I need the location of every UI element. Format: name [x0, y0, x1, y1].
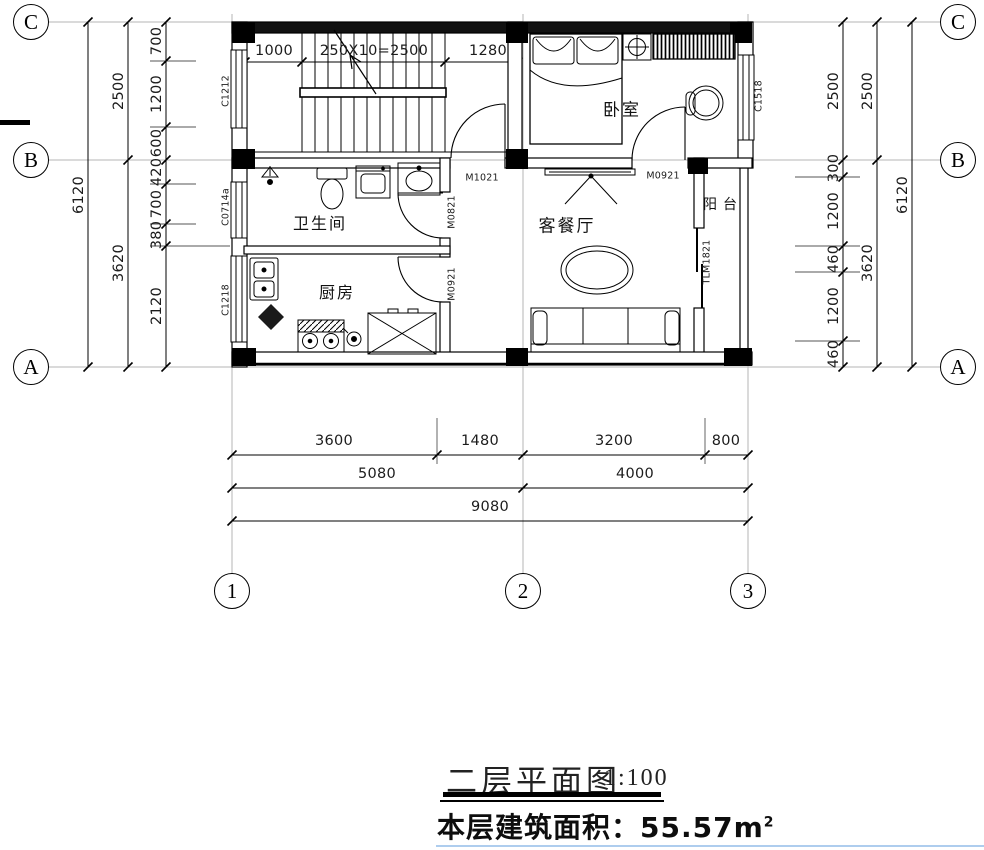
room-label-living-dining: 客餐厅	[539, 212, 596, 237]
dim-left-3620: 3620	[111, 244, 127, 282]
label-door-m0821: M0821	[447, 195, 458, 228]
dim-bottom-800: 800	[712, 433, 741, 449]
bedroom-table-chair	[686, 86, 723, 120]
label-window-c1518: C1518	[754, 80, 765, 112]
dim-bottom-5080: 5080	[358, 466, 396, 482]
washing-machine	[356, 166, 390, 198]
dim-right-300: 300	[826, 154, 842, 183]
grid-bubble-left-C: C	[13, 4, 49, 40]
counter-island	[368, 309, 436, 354]
title-underline-thick	[443, 792, 661, 797]
grid-bubble-left-B: B	[13, 142, 49, 178]
dim-left-600: 600	[149, 129, 165, 158]
dim-top-1000: 1000	[255, 43, 293, 59]
living-furniture	[531, 169, 680, 352]
window-c1518	[738, 55, 754, 140]
dim-left-700b: 700	[149, 190, 165, 219]
walls	[232, 22, 753, 367]
grid-bubble-2: 2	[505, 573, 541, 609]
gas-stove	[298, 320, 344, 352]
dim-left-2120: 2120	[149, 287, 165, 325]
grid-bubble-right-B: B	[940, 142, 976, 178]
grid-bubble-3: 3	[730, 573, 766, 609]
room-label-balcony: 阳台	[703, 194, 743, 214]
grid-bubble-right-C: C	[940, 4, 976, 40]
dim-bottom-1480: 1480	[461, 433, 499, 449]
sofa	[531, 308, 680, 352]
dim-right-3620: 3620	[860, 244, 876, 282]
dim-bottom-3600: 3600	[315, 433, 353, 449]
dim-left-2500: 2500	[111, 72, 127, 110]
label-door-m0921-bedroom: M0921	[646, 171, 679, 182]
shower-symbol	[262, 166, 278, 185]
grid-bubble-1: 1	[214, 573, 250, 609]
window-c1212	[231, 50, 247, 128]
label-door-m0921-kitchen: M0921	[447, 267, 458, 300]
floor-area-value: 55.57m	[640, 811, 764, 844]
cooker-pot	[344, 329, 361, 346]
kitchen-fixtures	[250, 258, 436, 354]
dimension-ticks	[84, 18, 917, 526]
dim-top-treads: 250X10=2500	[320, 43, 428, 59]
dim-left-700a: 700	[149, 27, 165, 56]
floor-area-sup: 2	[764, 815, 775, 831]
door-m1021	[451, 104, 505, 158]
floor-drain	[258, 304, 284, 330]
doors	[398, 104, 702, 308]
toilet	[317, 168, 347, 209]
dim-right-1200b: 1200	[826, 287, 842, 325]
dim-bottom-4000: 4000	[616, 466, 654, 482]
room-label-bedroom: 卧室	[603, 96, 641, 121]
bathroom-fixtures	[262, 163, 440, 209]
label-window-c1212: C1212	[221, 75, 232, 107]
wardrobe	[653, 34, 735, 59]
door-m0921-kitchen	[398, 257, 443, 302]
dim-right-2500i: 2500	[826, 72, 842, 110]
kitchen-sink	[250, 258, 278, 300]
dim-left-420: 420	[149, 158, 165, 187]
floor-area-label: 本层建筑面积：	[437, 811, 640, 844]
dim-bottom-9080: 9080	[471, 499, 509, 515]
plan-geometry	[0, 0, 984, 850]
floor-plan-sheet: C B A C B A 1 2 3 1000 250X10=2500 1280 …	[0, 0, 984, 850]
label-window-c0714a: C0714a	[221, 188, 232, 226]
label-door-tlm1821: TLM1821	[702, 240, 713, 285]
dimension-lines	[88, 22, 912, 521]
bed	[530, 34, 622, 144]
dining-table	[561, 246, 633, 294]
bedroom-furniture	[530, 34, 735, 144]
dim-right-2500: 2500	[860, 72, 876, 110]
room-label-kitchen: 厨房	[319, 279, 355, 303]
door-m0821-bath	[398, 193, 443, 238]
columns	[232, 22, 752, 366]
title-underline-thin	[440, 800, 664, 802]
dim-right-1200a: 1200	[826, 192, 842, 230]
selection-artifact-line	[436, 845, 984, 847]
dim-right-460b: 460	[826, 340, 842, 369]
room-label-bathroom: 卫生间	[293, 210, 347, 234]
dim-right-6120: 6120	[895, 176, 911, 214]
window-c1218	[231, 256, 247, 342]
label-door-m1021: M1021	[465, 173, 498, 184]
axis-grid-lines	[48, 14, 940, 573]
dim-left-1200: 1200	[149, 75, 165, 113]
label-window-c1218: C1218	[221, 284, 232, 316]
window-c0714a	[231, 182, 247, 238]
floor-area-text: 本层建筑面积：55.57m2	[437, 806, 775, 846]
sheet-edge-mark	[0, 120, 30, 125]
dim-bottom-3200: 3200	[595, 433, 633, 449]
nightstand-lamp	[623, 34, 651, 60]
dim-right-460a: 460	[826, 245, 842, 274]
grid-bubble-right-A: A	[940, 349, 976, 385]
dim-top-1280: 1280	[469, 43, 507, 59]
grid-bubble-left-A: A	[13, 349, 49, 385]
dim-left-6120: 6120	[71, 176, 87, 214]
dim-left-380: 380	[149, 221, 165, 250]
drawing-scale: 1:100	[604, 765, 669, 792]
tv-unit	[545, 169, 635, 204]
